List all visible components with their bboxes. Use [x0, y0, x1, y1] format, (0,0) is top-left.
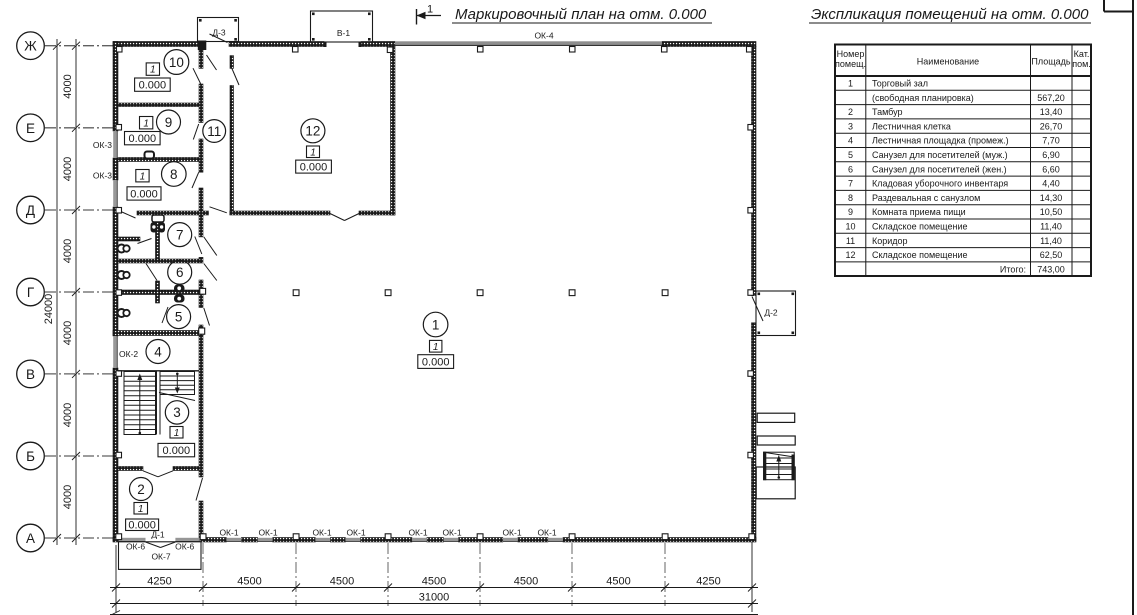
svg-text:7: 7 [176, 227, 184, 242]
svg-text:1: 1 [432, 317, 440, 332]
svg-text:ОК-2: ОК-2 [119, 349, 138, 359]
svg-text:26,70: 26,70 [1040, 121, 1063, 131]
svg-text:13,40: 13,40 [1040, 107, 1063, 117]
svg-text:Коридор: Коридор [872, 236, 908, 246]
svg-text:4000: 4000 [62, 239, 74, 263]
svg-text:Б: Б [26, 449, 35, 464]
svg-text:11: 11 [846, 236, 855, 246]
svg-text:пом.: пом. [1072, 59, 1091, 69]
svg-text:Торговый зал: Торговый зал [872, 79, 928, 89]
svg-text:Д: Д [26, 203, 35, 218]
svg-text:4000: 4000 [62, 403, 74, 427]
svg-text:4500: 4500 [514, 576, 538, 588]
svg-text:(свободная планировка): (свободная планировка) [872, 93, 974, 103]
svg-text:Наименование: Наименование [917, 57, 979, 67]
svg-text:11,40: 11,40 [1040, 236, 1062, 246]
svg-text:0.000: 0.000 [300, 161, 328, 173]
svg-text:10: 10 [169, 55, 184, 70]
svg-text:Складское помещение: Складское помещение [872, 222, 967, 232]
svg-text:Кладовая уборочного инвентаря: Кладовая уборочного инвентаря [872, 179, 1008, 189]
svg-text:Лестничная площадка (промеж.): Лестничная площадка (промеж.) [872, 136, 1009, 146]
svg-text:Тамбур: Тамбур [872, 107, 903, 117]
svg-text:0.000: 0.000 [129, 133, 157, 145]
svg-text:4500: 4500 [422, 576, 446, 588]
svg-text:6: 6 [848, 164, 853, 174]
svg-text:6,90: 6,90 [1042, 150, 1060, 160]
svg-text:11,40: 11,40 [1040, 222, 1062, 232]
svg-text:4250: 4250 [696, 576, 720, 588]
svg-text:12: 12 [845, 250, 855, 260]
svg-text:Лестничная клетка: Лестничная клетка [872, 121, 951, 131]
svg-text:0.000: 0.000 [130, 188, 158, 200]
svg-text:Раздевальная с санузлом: Раздевальная с санузлом [872, 193, 980, 203]
svg-text:10,50: 10,50 [1040, 207, 1063, 217]
svg-text:Кат.: Кат. [1074, 49, 1090, 59]
svg-text:ОК-1: ОК-1 [219, 528, 238, 538]
svg-text:помещ.: помещ. [835, 59, 866, 69]
svg-text:2: 2 [848, 107, 853, 117]
svg-text:5: 5 [175, 309, 183, 324]
svg-text:Маркировочный план на отм. 0.0: Маркировочный план на отм. 0.000 [455, 6, 707, 23]
svg-text:12: 12 [305, 124, 320, 139]
svg-text:ОК-7: ОК-7 [151, 552, 170, 562]
svg-text:7,70: 7,70 [1042, 136, 1060, 146]
svg-text:А: А [26, 531, 35, 546]
svg-text:В: В [26, 367, 35, 382]
svg-text:7: 7 [848, 179, 853, 189]
svg-text:4000: 4000 [62, 74, 74, 98]
svg-text:Санузел для посетителей (муж.): Санузел для посетителей (муж.) [872, 150, 1008, 160]
svg-text:Г: Г [27, 285, 35, 300]
svg-text:В-1: В-1 [337, 28, 351, 38]
svg-text:1: 1 [140, 171, 146, 182]
svg-text:1: 1 [150, 65, 156, 76]
svg-text:24000: 24000 [43, 294, 55, 325]
svg-text:ОК-3: ОК-3 [93, 171, 112, 181]
svg-text:1: 1 [433, 342, 439, 353]
svg-text:743,00: 743,00 [1037, 264, 1065, 274]
svg-text:1: 1 [848, 79, 853, 89]
svg-text:Д-1: Д-1 [151, 530, 165, 540]
svg-text:ОК-3: ОК-3 [93, 140, 112, 150]
svg-text:2: 2 [137, 482, 145, 497]
svg-text:Е: Е [26, 121, 35, 136]
svg-text:Экспликация помещений на отм.: Экспликация помещений на отм. 0.000 [811, 6, 1089, 23]
svg-text:0.000: 0.000 [422, 356, 450, 368]
svg-text:4: 4 [848, 136, 853, 146]
svg-text:Комната приема пищи: Комната приема пищи [872, 207, 966, 217]
svg-text:ОК-4: ОК-4 [534, 31, 553, 41]
svg-text:1: 1 [310, 147, 316, 158]
svg-text:6,60: 6,60 [1042, 164, 1060, 174]
svg-text:567,20: 567,20 [1037, 93, 1065, 103]
svg-text:ОК-1: ОК-1 [346, 528, 365, 538]
svg-text:3: 3 [173, 405, 181, 420]
svg-text:ОК-1: ОК-1 [537, 528, 556, 538]
svg-text:1: 1 [143, 118, 149, 129]
svg-text:4000: 4000 [62, 157, 74, 181]
svg-text:Площадь: Площадь [1031, 57, 1070, 67]
svg-text:ОК-1: ОК-1 [502, 528, 521, 538]
svg-text:ОК-1: ОК-1 [312, 528, 331, 538]
svg-text:9: 9 [848, 207, 853, 217]
svg-text:4500: 4500 [330, 576, 354, 588]
svg-text:14,30: 14,30 [1040, 193, 1063, 203]
svg-text:31000: 31000 [419, 592, 450, 604]
svg-text:Санузел для посетителей (жен.): Санузел для посетителей (жен.) [872, 164, 1007, 174]
svg-text:4500: 4500 [237, 576, 261, 588]
svg-text:1: 1 [174, 428, 180, 439]
svg-text:0.000: 0.000 [139, 80, 167, 92]
svg-text:62,50: 62,50 [1040, 250, 1063, 260]
svg-text:4000: 4000 [62, 321, 74, 345]
svg-text:4,40: 4,40 [1042, 179, 1060, 189]
svg-text:Ж: Ж [24, 39, 37, 54]
svg-text:10: 10 [845, 222, 855, 232]
svg-text:8: 8 [170, 167, 178, 182]
svg-text:5: 5 [848, 150, 853, 160]
svg-text:6: 6 [176, 265, 184, 280]
svg-text:Номер: Номер [837, 49, 865, 59]
svg-text:ОК-6: ОК-6 [126, 542, 145, 552]
svg-text:Складское помещение: Складское помещение [872, 250, 967, 260]
svg-text:1: 1 [427, 4, 433, 16]
svg-text:4500: 4500 [606, 576, 630, 588]
svg-text:Д-3: Д-3 [212, 28, 226, 38]
svg-text:11: 11 [207, 124, 221, 139]
svg-text:8: 8 [848, 193, 853, 203]
svg-text:3: 3 [848, 121, 853, 131]
svg-text:Д-2: Д-2 [764, 308, 778, 318]
svg-text:Итого:: Итого: [1000, 264, 1026, 274]
svg-text:4: 4 [154, 344, 162, 359]
svg-text:ОК-6: ОК-6 [175, 542, 194, 552]
svg-text:ОК-1: ОК-1 [442, 528, 461, 538]
svg-text:4250: 4250 [147, 576, 171, 588]
svg-text:ОК-1: ОК-1 [258, 528, 277, 538]
svg-text:0.000: 0.000 [163, 445, 191, 457]
svg-text:4000: 4000 [62, 485, 74, 509]
svg-text:9: 9 [165, 115, 173, 130]
svg-text:1: 1 [138, 504, 144, 515]
svg-text:ОК-1: ОК-1 [408, 528, 427, 538]
